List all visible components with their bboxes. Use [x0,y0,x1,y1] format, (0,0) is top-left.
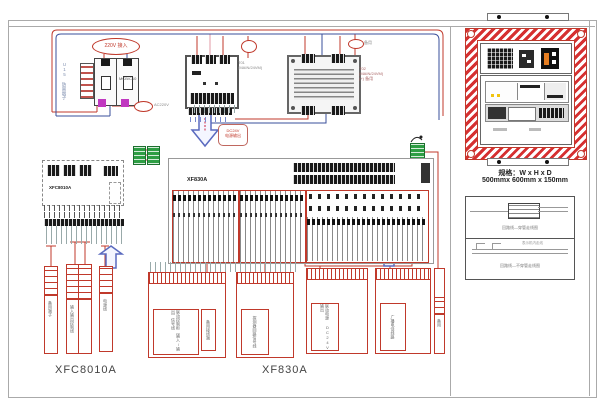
center-board: XF830A [168,158,434,264]
t02-label: T02 (MAIN/24VM) (+) 备用 [359,66,395,81]
wire-label-table: 联动控制柜（输入/输出）信号线 备用接线端 [148,272,226,358]
table-desc: 联动电源 DC24V 输出 [311,303,339,351]
cabinet-module [541,48,559,69]
table-header [237,273,293,284]
din-rail-row [485,104,569,122]
screw-icon [353,59,357,63]
corner-ring-icon [577,30,585,38]
legend-sketch-line [538,211,568,212]
component-row [44,205,124,211]
legend-note: 表示机内走线 [522,241,543,246]
led-dot [491,94,494,97]
component-dot [215,82,218,85]
breaker-terminal-bottom [121,99,129,107]
screw-icon [353,106,357,110]
terminal-connector-pair-left [133,146,146,165]
table-header [376,269,430,280]
legend-caption2: 回路线—不穿管走线图 [466,263,574,269]
cabinet-bottom-bar [487,158,569,166]
terminal-strip [190,93,234,104]
terminal-block [331,54,345,63]
legend-sketch-conduit [508,203,540,219]
mains-input-label: 220V 接入 [93,39,139,54]
table-desc-text: 联动控制柜（输入/输出）信号线 [171,310,181,354]
bank-terminals [307,219,426,225]
cabinet-upper-box [480,43,572,74]
din-module [487,83,518,100]
bank-components [240,213,305,217]
terminal-block [47,165,60,176]
strip-header [67,265,91,300]
module-indicator [544,53,549,65]
bank-terminals [240,195,305,201]
dc-output-callout: DC24V 电源输出 [218,124,248,146]
bank-terminals [173,195,238,201]
module-window [522,54,526,57]
strip-header [45,267,57,296]
output-bank [306,190,429,263]
din-module [488,107,506,119]
table-desc-text: 探测器回路信号线 [253,316,258,348]
terminal-strip [538,108,564,118]
legend-sketch-line [538,207,568,208]
surge-terminal-label: U15 防雷端子 [62,62,67,100]
relay-output-wires [190,117,230,122]
table-desc: 备用接线端 [201,309,216,351]
breaker-terminal-bottom [98,99,106,107]
table-desc: 联动控制柜（输入/输出）信号线 [153,309,199,355]
chip [192,71,201,75]
t01-oval [241,40,257,53]
terminal-connector-pair-right [147,146,160,165]
table-desc-text: 广播电话线路 [391,315,396,339]
wire-label-table: 广播电话线路 [375,268,431,354]
table-desc-text: 联动电源 DC24V 输出 [320,304,330,350]
terminal-block [103,166,118,176]
din-module [518,83,545,100]
corner-ring-icon [467,30,475,38]
left-board-label: XFC8010A [49,185,71,190]
t02-line3: (+) 备用 [359,76,395,81]
table-header [149,273,225,284]
t02-tap-tag: 备用 [364,40,372,45]
din-module [508,107,536,121]
center-model-title: XF830A [262,364,308,376]
wire-label-table: 联动电源 DC24V 输出 [306,268,368,354]
bolt-icon [497,160,501,164]
terminal-block [301,106,315,115]
module-strip [520,85,540,88]
terminal-strip [293,175,395,184]
bank-sliders [307,217,426,261]
terminal-strip [293,163,395,172]
left-model-title: XFC8010A [55,364,117,376]
terminal-block [301,54,315,63]
strip-text: 备用端子 [48,301,53,317]
strip-text: 备用 [437,319,442,327]
din-rail-row [485,81,569,103]
terminal-block [205,55,216,64]
screw-icon [291,106,295,110]
terminal-block [63,165,76,176]
mains-input-oval: 220V 接入 [92,38,140,55]
transistor-row [309,194,424,199]
relay-block [185,55,239,109]
bank-components [173,213,238,217]
din-module [545,83,566,100]
bolt-icon [545,160,549,164]
center-board-label: XF830A [187,177,207,183]
t02-tap-oval [348,39,364,49]
wire-label-strip: 电源线 [99,266,113,352]
legend-sketch-hook [476,243,485,250]
terminal-strip [44,219,124,226]
table-desc-text: 备用接线端 [206,320,211,340]
breaker-terminal-top [123,59,132,66]
side-module [421,163,430,183]
wire-label-strip: 输入输出控制线 [66,264,92,354]
cabinet-top-bar [487,13,569,21]
cabinet-module [487,48,513,69]
surge-protector [80,63,94,99]
terminal-block [79,165,92,176]
panel-mark [529,128,541,131]
callout-line2: 电源输出 [219,133,247,138]
mains-tap-oval [134,101,153,112]
bolt-icon [497,15,501,19]
legend-sketch-line [472,249,568,250]
legend-sketch-line [470,211,508,212]
heatsink-fins [294,69,354,100]
legend-caption1: 回路线—穿管走线图 [466,225,574,231]
power-supply-unit [287,55,361,114]
flow-arrow-up-left-icon [100,246,122,268]
circuit-breaker-2 [116,58,139,106]
corner-ring-icon [467,150,475,158]
wire-label-strip: 备用 [434,268,445,354]
wire-label-table: 探测器回路信号线 [236,272,294,358]
cabinet-module [519,50,534,68]
t01-label: T01 (MAIN/24VM) [238,60,274,70]
screw-icon [291,59,295,63]
terminal-block [331,106,345,115]
table-desc: 广播电话线路 [380,303,406,351]
strip-header [435,297,444,315]
cabinet-lower-box [480,75,572,145]
table-desc: 探测器回路信号线 [241,309,269,355]
component-row [44,212,124,218]
legend-sketch-hook [492,243,501,250]
strip-text: 电源线 [103,299,108,311]
breaker-toggle [101,76,111,90]
strip-text: 输入输出控制线 [70,305,75,333]
wire-label-strip: 备用端子 [44,266,58,354]
wire-bundle [150,262,296,272]
loop-bank [239,190,306,263]
transistor-row [309,206,424,211]
mains-tap-tag: AC220V [154,102,169,107]
led-dot [497,94,500,97]
legend-sketch-line [472,253,568,254]
module-window [552,60,556,64]
table-header [307,269,367,280]
wire-bundle [46,226,122,244]
module-strip [547,95,563,98]
arrow-feed-wires [194,105,238,113]
t01-line2: (MAIN/24VM) [238,65,274,70]
component-dot [203,82,206,85]
panel-mark [493,128,507,131]
terminal-block [219,55,230,64]
strip-header [100,267,112,294]
circuit-breaker-1 [94,58,117,106]
terminal-block [191,55,202,64]
schematic-sheet: 220V 接入 U15 防雷端子 MCB/C10 AC220V T01 (MAI… [0,0,600,400]
vertical-module [109,182,121,204]
corner-ring-icon [577,150,585,158]
breaker-model-label: MCB/C10 [119,76,136,81]
module-window [527,60,531,63]
legend-divider [466,238,574,239]
cabinet-spec-line2: 500mmx 600mm x 150mm [455,177,595,184]
left-board: XFC8010A [42,160,124,206]
loop-bank [172,190,239,263]
bolt-icon [545,15,549,19]
legend-box: 回路线—穿管走线图 表示机内走线 回路线—不穿管走线图 [465,196,575,280]
breaker-terminal-top [101,59,110,66]
module-window [552,52,556,56]
